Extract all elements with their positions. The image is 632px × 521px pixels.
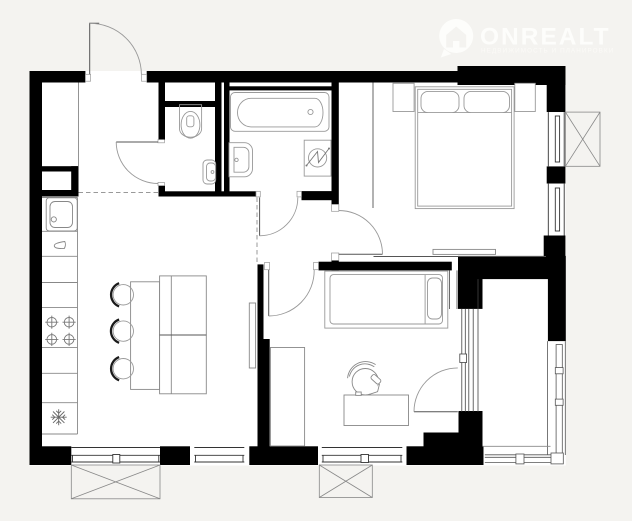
svg-text:НЕДВИЖИМОСТЬ И ПЛАНИРОВКИ: НЕДВИЖИМОСТЬ И ПЛАНИРОВКИ [481,48,614,55]
svg-text:ONREALT: ONREALT [480,24,611,51]
